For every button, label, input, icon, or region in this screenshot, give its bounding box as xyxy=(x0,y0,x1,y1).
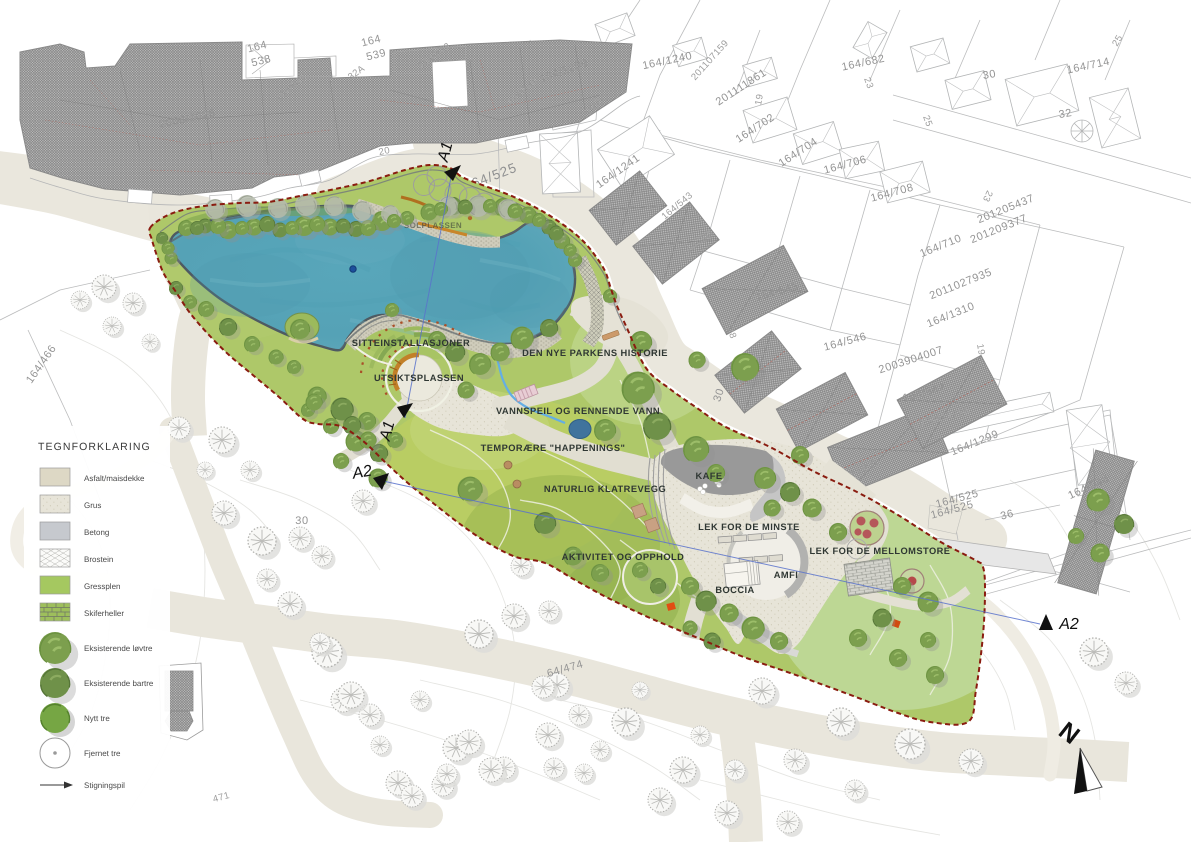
svg-text:TEMPORÆRE "HAPPENINGS": TEMPORÆRE "HAPPENINGS" xyxy=(481,443,626,453)
svg-text:UTSIKTSPLASSEN: UTSIKTSPLASSEN xyxy=(374,373,464,383)
svg-text:20: 20 xyxy=(378,145,391,158)
svg-text:A2: A2 xyxy=(350,462,373,482)
svg-text:LEK FOR DE MINSTE: LEK FOR DE MINSTE xyxy=(698,522,800,532)
svg-text:AMFI: AMFI xyxy=(774,570,799,580)
svg-text:TEGNFORKLARING: TEGNFORKLARING xyxy=(38,441,151,453)
svg-text:19: 19 xyxy=(753,93,766,106)
svg-text:32: 32 xyxy=(1058,107,1073,121)
svg-text:Skiferheller: Skiferheller xyxy=(84,609,124,618)
svg-text:AKTIVITET OG OPPHOLD: AKTIVITET OG OPPHOLD xyxy=(562,552,685,562)
svg-text:LEK FOR DE MELLOMSTORE: LEK FOR DE MELLOMSTORE xyxy=(810,546,951,556)
svg-text:Eksisterende løvtre: Eksisterende løvtre xyxy=(84,644,153,653)
svg-text:Gressplen: Gressplen xyxy=(84,582,120,591)
svg-text:SITTEINSTALLASJONER: SITTEINSTALLASJONER xyxy=(352,338,470,348)
svg-text:Nytt tre: Nytt tre xyxy=(84,714,110,723)
svg-text:BOCCIA: BOCCIA xyxy=(715,585,754,595)
svg-text:Grus: Grus xyxy=(84,501,101,510)
svg-text:Brostein: Brostein xyxy=(84,555,113,564)
svg-text:VANNSPEIL OG RENNENDE VANN: VANNSPEIL OG RENNENDE VANN xyxy=(496,406,660,416)
svg-text:Asfalt/maisdekke: Asfalt/maisdekke xyxy=(84,474,145,483)
svg-text:30: 30 xyxy=(295,515,308,527)
svg-text:Betong: Betong xyxy=(84,528,109,537)
svg-text:Eksisterende bartre: Eksisterende bartre xyxy=(84,679,154,688)
svg-text:Fjernet tre: Fjernet tre xyxy=(84,749,121,758)
svg-text:30: 30 xyxy=(982,68,997,82)
svg-text:A2: A2 xyxy=(1058,616,1079,633)
svg-text:19: 19 xyxy=(974,343,987,356)
svg-text:Stigningspil: Stigningspil xyxy=(84,781,125,790)
svg-text:DEN NYE PARKENS HISTORIE: DEN NYE PARKENS HISTORIE xyxy=(522,348,668,358)
svg-text:KAFE: KAFE xyxy=(695,471,722,481)
svg-text:NATURLIG KLATREVEGG: NATURLIG KLATREVEGG xyxy=(544,484,666,494)
